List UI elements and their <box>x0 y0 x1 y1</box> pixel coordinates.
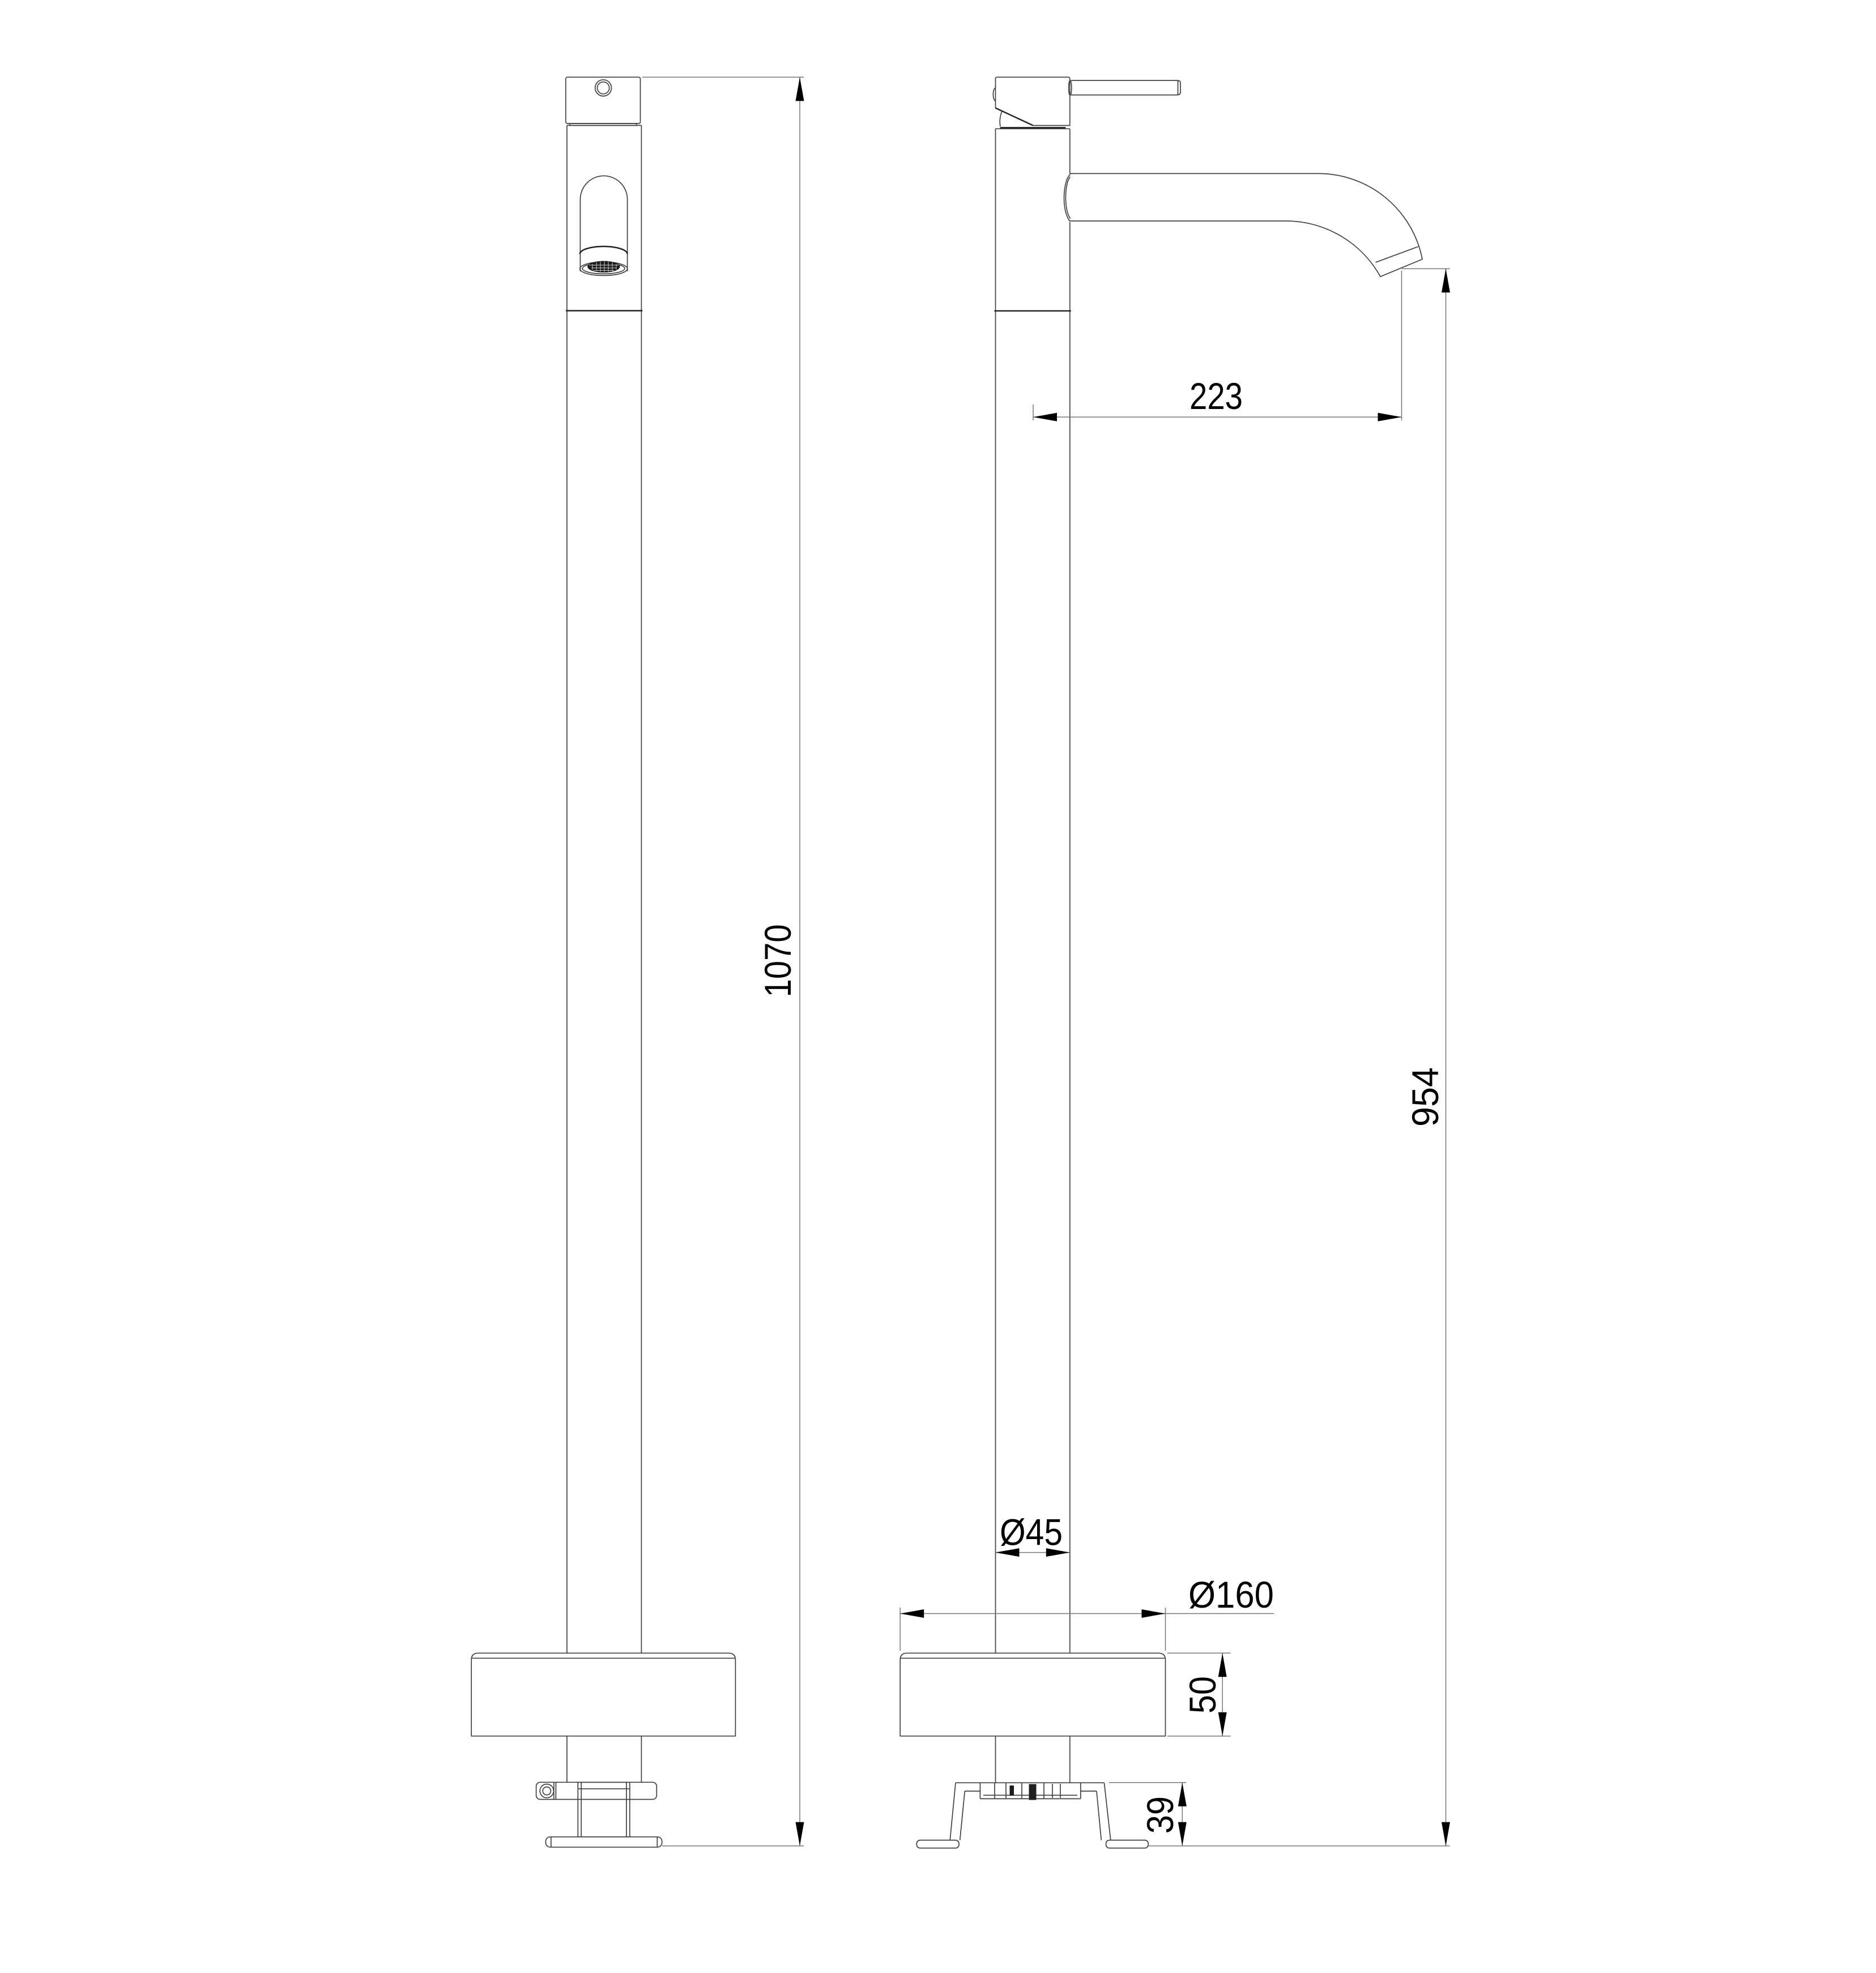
svg-text:1070: 1070 <box>757 924 799 998</box>
svg-text:Ø160: Ø160 <box>1188 1574 1274 1616</box>
svg-text:223: 223 <box>1189 375 1243 417</box>
svg-text:50: 50 <box>1182 1676 1223 1714</box>
svg-text:39: 39 <box>1139 1796 1181 1834</box>
svg-text:Ø45: Ø45 <box>1000 1511 1063 1553</box>
svg-text:954: 954 <box>1404 1067 1446 1127</box>
